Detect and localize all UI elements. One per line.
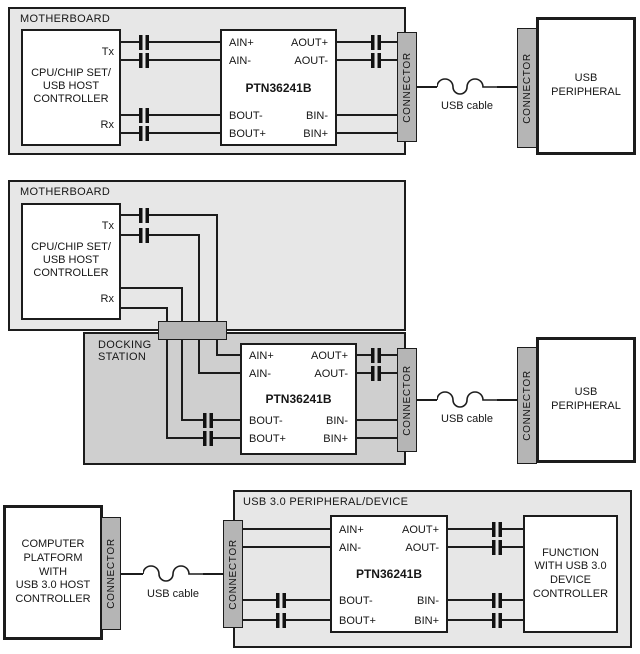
pin-label-bin-plus: BIN+	[323, 433, 348, 446]
capacitor	[492, 540, 502, 555]
wire	[448, 546, 523, 548]
connector-label: CONNECTOR	[402, 365, 413, 436]
pin-label-bout-plus: BOUT+	[339, 615, 376, 628]
capacitor	[203, 413, 213, 428]
wire	[121, 234, 200, 236]
wire	[181, 287, 183, 421]
wire	[497, 399, 517, 401]
connector-label: CONNECTOR	[402, 52, 413, 123]
pin-label-ain-minus: AIN-	[229, 55, 251, 68]
wire	[121, 307, 168, 309]
redriver-chip-box-2: AIN+ AIN- BOUT- BOUT+ AOUT+ AOUT- BIN- B…	[240, 343, 357, 455]
cpu-host-controller-label: CPU/CHIP SET/ USB HOST CONTROLLER	[23, 241, 119, 280]
connector-box: CONNECTOR	[223, 520, 243, 628]
cpu-host-controller-label: CPU/CHIP SET/ USB HOST CONTROLLER	[23, 67, 119, 106]
chip-name-label: PTN36241B	[332, 567, 446, 581]
usb-cable-label: USB cable	[133, 588, 213, 600]
pin-label-aout-minus: AOUT-	[294, 55, 328, 68]
pin-label-bin-minus: BIN-	[306, 110, 328, 123]
capacitor	[139, 208, 149, 223]
tx-label: Tx	[102, 220, 114, 232]
capacitor	[139, 228, 149, 243]
connector-box: CONNECTOR	[517, 347, 537, 464]
connector-box: CONNECTOR	[101, 517, 121, 630]
capacitor	[139, 35, 149, 50]
wire	[417, 399, 437, 401]
connector-box: CONNECTOR	[397, 32, 417, 142]
wire	[121, 114, 220, 116]
wire	[121, 41, 220, 43]
pin-label-ain-minus: AIN-	[249, 368, 271, 381]
board-to-board-connector	[158, 321, 227, 340]
pin-label-ain-plus: AIN+	[229, 37, 254, 50]
pin-label-bin-plus: BIN+	[414, 615, 439, 628]
usb-cable-squiggle	[437, 77, 497, 97]
pin-label-bout-minus: BOUT-	[339, 595, 373, 608]
wire	[216, 354, 240, 356]
pin-label-bout-minus: BOUT-	[249, 415, 283, 428]
connector-label: CONNECTOR	[106, 538, 117, 609]
usb-cable-squiggle	[437, 390, 497, 410]
capacitor	[371, 35, 381, 50]
wire	[121, 287, 183, 289]
wire	[121, 214, 218, 216]
motherboard-label-1: MOTHERBOARD	[20, 13, 110, 25]
usb3-peripheral-device-label: USB 3.0 PERIPHERAL/DEVICE	[243, 496, 408, 508]
rx-label: Rx	[101, 119, 114, 131]
connector-label: CONNECTOR	[522, 53, 533, 124]
wire	[417, 86, 437, 88]
pin-label-ain-plus: AIN+	[339, 524, 364, 537]
pin-label-aout-plus: AOUT+	[291, 37, 328, 50]
redriver-chip-box-3: AIN+ AIN- BOUT- BOUT+ AOUT+ AOUT- BIN- B…	[330, 515, 448, 633]
wire	[337, 132, 397, 134]
chip-name-label: PTN36241B	[222, 81, 335, 95]
wire	[243, 528, 330, 530]
wire	[337, 59, 397, 61]
usb-peripheral-box-1: USB PERIPHERAL	[536, 17, 636, 155]
wire	[448, 528, 523, 530]
wire	[121, 132, 220, 134]
wire	[198, 234, 200, 374]
usb-cable-squiggle	[143, 564, 203, 584]
function-controller-box: FUNCTION WITH USB 3.0 DEVICE CONTROLLER	[523, 515, 618, 633]
motherboard-label-2: MOTHERBOARD	[20, 186, 110, 198]
wire	[357, 437, 397, 439]
pin-label-bin-minus: BIN-	[326, 415, 348, 428]
wire	[243, 546, 330, 548]
connector-box: CONNECTOR	[517, 28, 537, 148]
wire	[448, 599, 523, 601]
wire	[243, 599, 330, 601]
usb-cable-label: USB cable	[427, 100, 507, 112]
capacitor	[492, 593, 502, 608]
pin-label-ain-plus: AIN+	[249, 350, 274, 363]
wire	[121, 573, 143, 575]
wire	[337, 41, 397, 43]
pin-label-bout-plus: BOUT+	[229, 128, 266, 141]
redriver-chip-box-1: AIN+ AIN- BOUT- BOUT+ AOUT+ AOUT- BIN- B…	[220, 29, 337, 146]
capacitor	[276, 593, 286, 608]
chip-name-label: PTN36241B	[242, 392, 355, 406]
pin-label-bin-minus: BIN-	[417, 595, 439, 608]
connector-label: CONNECTOR	[228, 539, 239, 610]
wire	[497, 86, 517, 88]
wire	[121, 59, 220, 61]
ptn36241b-application-diagrams: MOTHERBOARD CPU/CHIP SET/ USB HOST CONTR…	[0, 0, 640, 654]
wire	[448, 619, 523, 621]
pin-label-bin-plus: BIN+	[303, 128, 328, 141]
pin-label-bout-minus: BOUT-	[229, 110, 263, 123]
connector-box: CONNECTOR	[397, 348, 417, 452]
cpu-host-controller-box-1: CPU/CHIP SET/ USB HOST CONTROLLER Tx Rx	[21, 29, 121, 146]
pin-label-aout-minus: AOUT-	[405, 542, 439, 555]
capacitor	[139, 108, 149, 123]
pin-label-aout-minus: AOUT-	[314, 368, 348, 381]
cpu-host-controller-box-2: CPU/CHIP SET/ USB HOST CONTROLLER Tx Rx	[21, 203, 121, 320]
tx-label: Tx	[102, 46, 114, 58]
pin-label-ain-minus: AIN-	[339, 542, 361, 555]
capacitor	[203, 431, 213, 446]
computer-platform-box: COMPUTER PLATFORM WITH USB 3.0 HOST CONT…	[3, 505, 103, 640]
capacitor	[371, 53, 381, 68]
capacitor	[371, 366, 381, 381]
usb-peripheral-box-2: USB PERIPHERAL	[536, 337, 636, 463]
capacitor	[139, 53, 149, 68]
capacitor	[492, 613, 502, 628]
pin-label-aout-plus: AOUT+	[311, 350, 348, 363]
capacitor	[371, 348, 381, 363]
wire	[198, 372, 240, 374]
rx-label: Rx	[101, 293, 114, 305]
capacitor	[492, 522, 502, 537]
capacitor	[276, 613, 286, 628]
connector-label: CONNECTOR	[522, 370, 533, 441]
wire	[243, 619, 330, 621]
wire	[337, 114, 397, 116]
pin-label-bout-plus: BOUT+	[249, 433, 286, 446]
docking-station-label: DOCKING STATION	[98, 339, 151, 363]
pin-label-aout-plus: AOUT+	[402, 524, 439, 537]
capacitor	[139, 126, 149, 141]
usb-cable-label: USB cable	[427, 413, 507, 425]
wire	[203, 573, 223, 575]
wire	[357, 419, 397, 421]
